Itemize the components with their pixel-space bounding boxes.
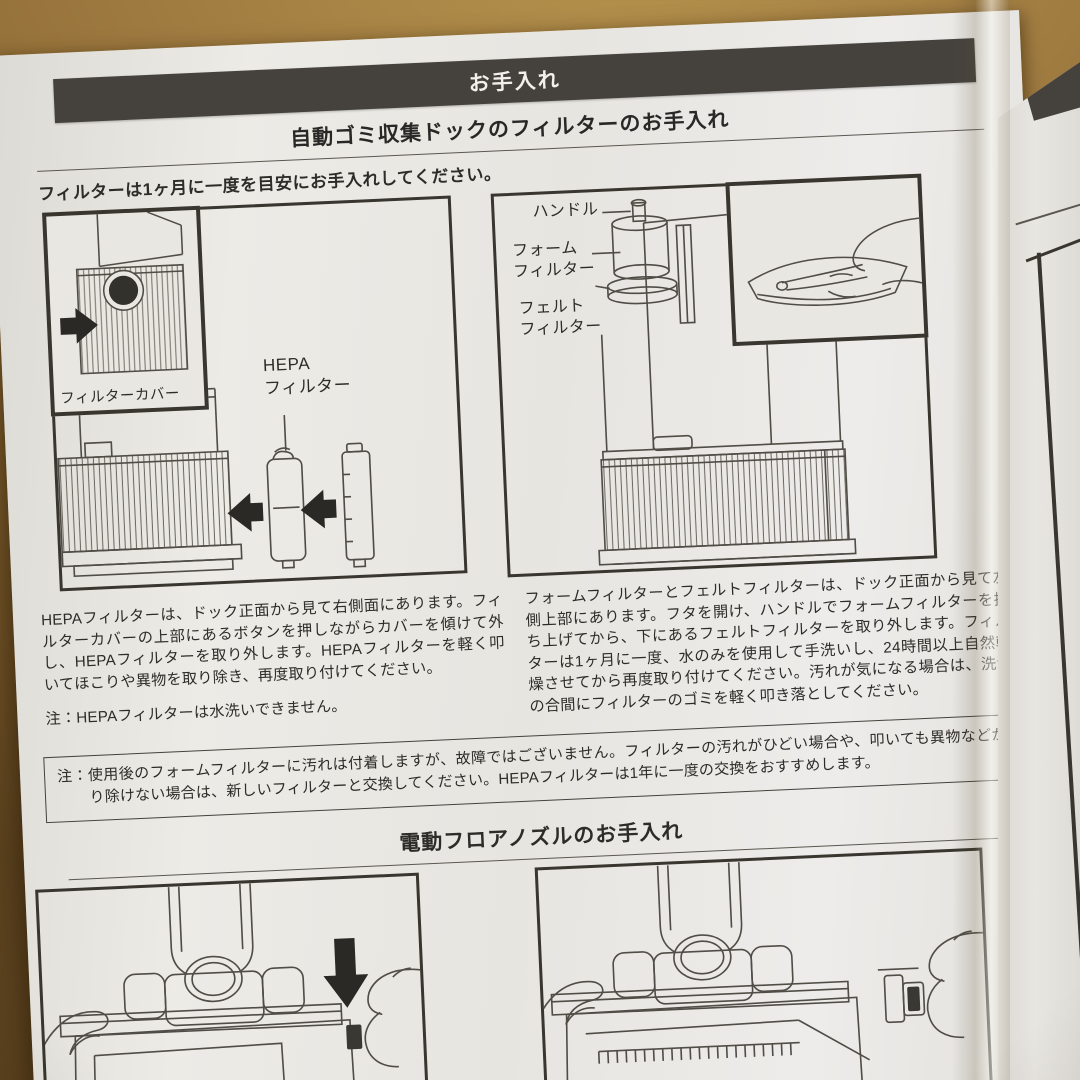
facing-page-rule-fragment (1015, 201, 1080, 226)
foam-felt-figure-box: ハンドル フォーム フィルター フェルト フィルター (491, 175, 938, 578)
felt-filter-label: フェルト フィルター (518, 296, 602, 341)
nozzle-release-illustration (38, 876, 431, 1080)
dock-texts-row: HEPAフィルターは、ドック正面から見て右側面にあります。フィルターカバーの上部… (41, 566, 1036, 739)
facing-page-sliver (998, 0, 1080, 1080)
facing-page-boxedge-fragment (1037, 253, 1080, 1012)
care-header-label: お手入れ (468, 64, 561, 98)
nozzle-brush-figure-box (535, 848, 998, 1080)
filter-cover-illustration (46, 210, 205, 412)
foam-text-column: フォームフィルターとフェルトフィルターは、ドック正面から見て左側上部にあります。… (524, 567, 1013, 718)
handle-label: ハンドル (532, 200, 599, 224)
facing-page-header-bar-fragment (1021, 55, 1080, 120)
foam-paragraph: フォームフィルターとフェルトフィルターは、ドック正面から見て左側上部にあります。… (524, 567, 1013, 718)
hand-opening-lid-illustration (730, 178, 925, 342)
dock-figures-row: HEPA フィルター (43, 170, 1043, 597)
nozzle-release-figure-box (35, 873, 434, 1080)
hepa-paragraph: HEPAフィルターは、ドック正面から見て右側面にあります。フィルターカバーの上部… (41, 590, 506, 697)
foam-filter-label: フォーム フィルター (512, 238, 596, 283)
photographed-manual-scene: お手入れ 自動ゴミ収集ドックのフィルターのお手入れ フィルターは1ヶ月に一度を目… (0, 0, 1080, 1080)
nozzle-brush-illustration (538, 851, 995, 1080)
manual-page: お手入れ 自動ゴミ収集ドックのフィルターのお手入れ フィルターは1ヶ月に一度を目… (0, 10, 1076, 1080)
facing-page-boxtop-fragment (1026, 237, 1080, 263)
hepa-filter-label: HEPA フィルター (263, 351, 352, 401)
filter-cover-inset: フィルターカバー (42, 206, 209, 417)
hepa-figure-box: HEPA フィルター (43, 196, 467, 592)
hepa-text-column: HEPAフィルターは、ドック正面から見て右側面にあります。フィルターカバーの上部… (41, 590, 508, 740)
hepa-note: 注：HEPAフィルターは水洗いできません。 (45, 689, 508, 731)
nozzle-figures-row (35, 844, 1071, 1080)
lid-open-inset (725, 174, 928, 347)
caution-note-text: 注：使用後のフォームフィルターに汚れは付着しますが、故障ではございません。フィル… (57, 724, 1024, 810)
